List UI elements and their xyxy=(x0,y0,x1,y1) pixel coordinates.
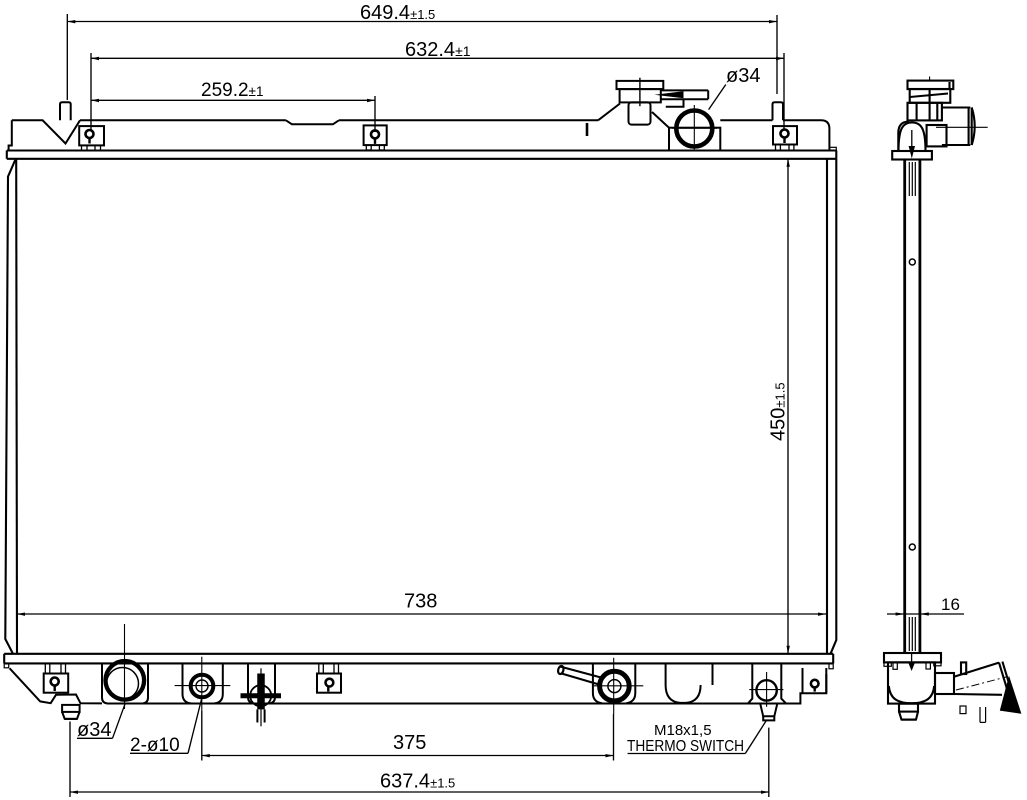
svg-text:259.2±1: 259.2±1 xyxy=(201,80,263,101)
svg-text:ø34: ø34 xyxy=(77,719,111,741)
svg-text:375: 375 xyxy=(393,732,426,754)
svg-text:ø34: ø34 xyxy=(726,65,760,87)
svg-text:738: 738 xyxy=(404,591,437,613)
svg-text:632.4±1: 632.4±1 xyxy=(405,39,471,61)
svg-text:M18x1,5: M18x1,5 xyxy=(654,722,712,739)
svg-text:THERMO SWITCH: THERMO SWITCH xyxy=(627,738,744,755)
svg-text:2-ø10: 2-ø10 xyxy=(130,735,180,756)
svg-text:16: 16 xyxy=(941,595,960,614)
